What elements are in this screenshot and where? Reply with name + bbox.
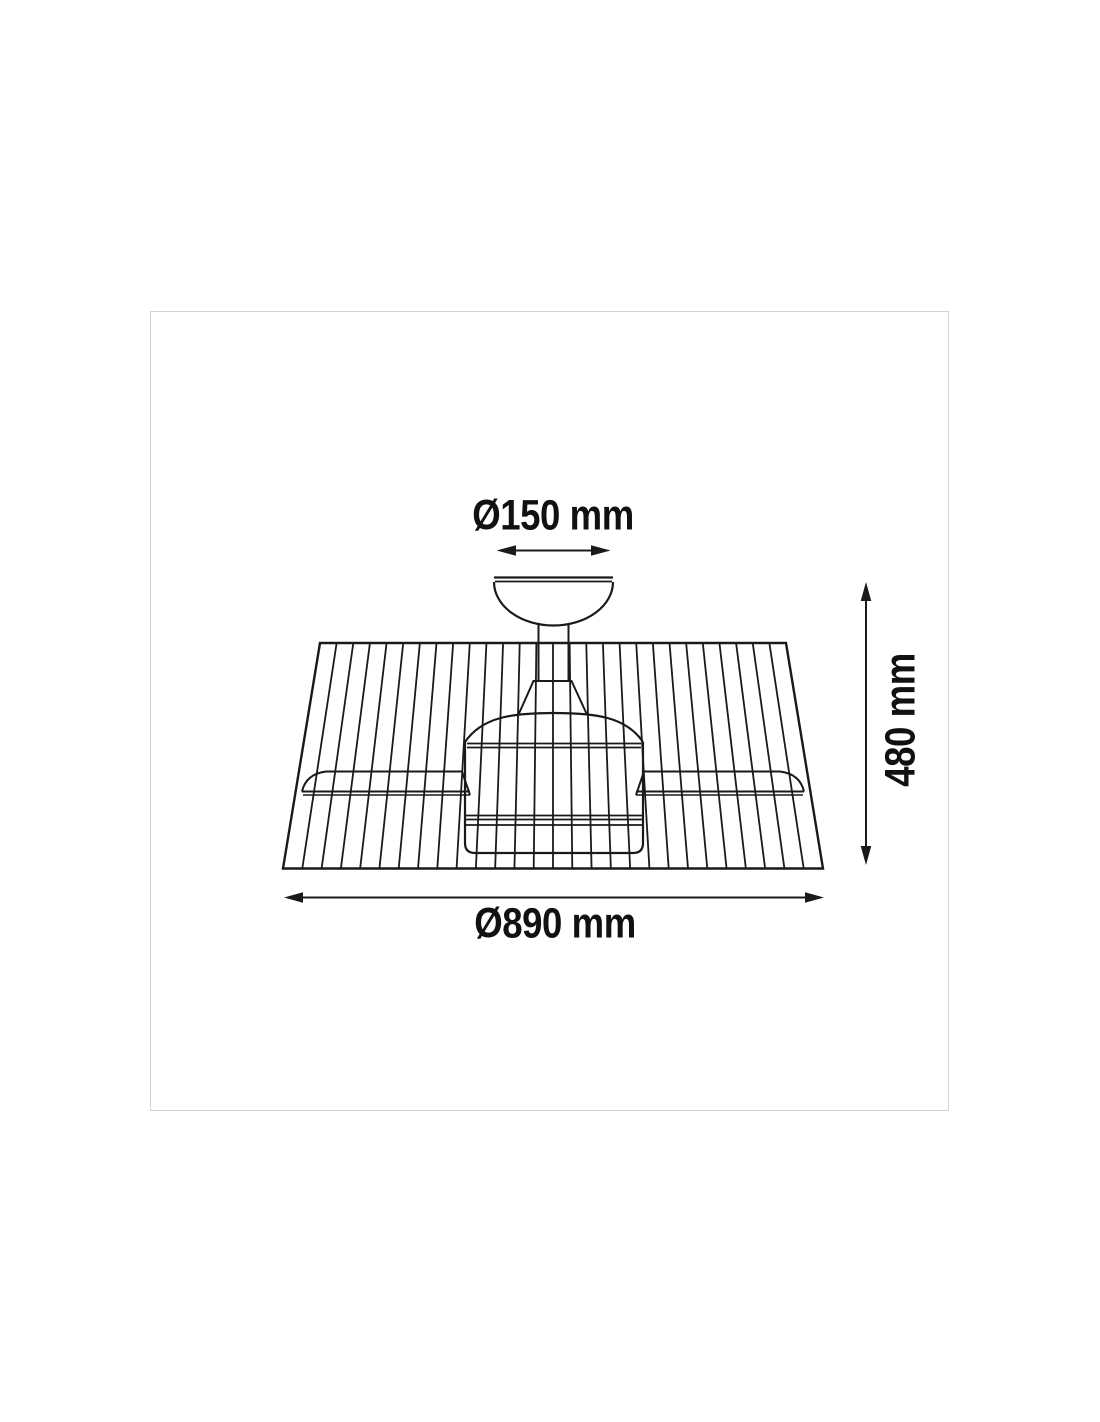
dim-arrow-right — [861, 582, 872, 865]
fan-dimension-drawing — [0, 0, 1100, 1422]
canopy — [494, 578, 613, 626]
right-blade — [636, 772, 804, 796]
dim-label-canopy-diameter: Ø150 mm — [472, 492, 634, 541]
dim-label-overall-diameter: Ø890 mm — [474, 900, 636, 949]
dim-arrow-top — [497, 545, 611, 556]
motor-body — [465, 713, 643, 853]
left-blade — [302, 772, 470, 796]
diagram-page: Ø150 mm 480 mm Ø890 mm — [0, 0, 1100, 1422]
shade-slats — [283, 643, 823, 869]
dim-label-height: 480 mm — [877, 653, 926, 787]
